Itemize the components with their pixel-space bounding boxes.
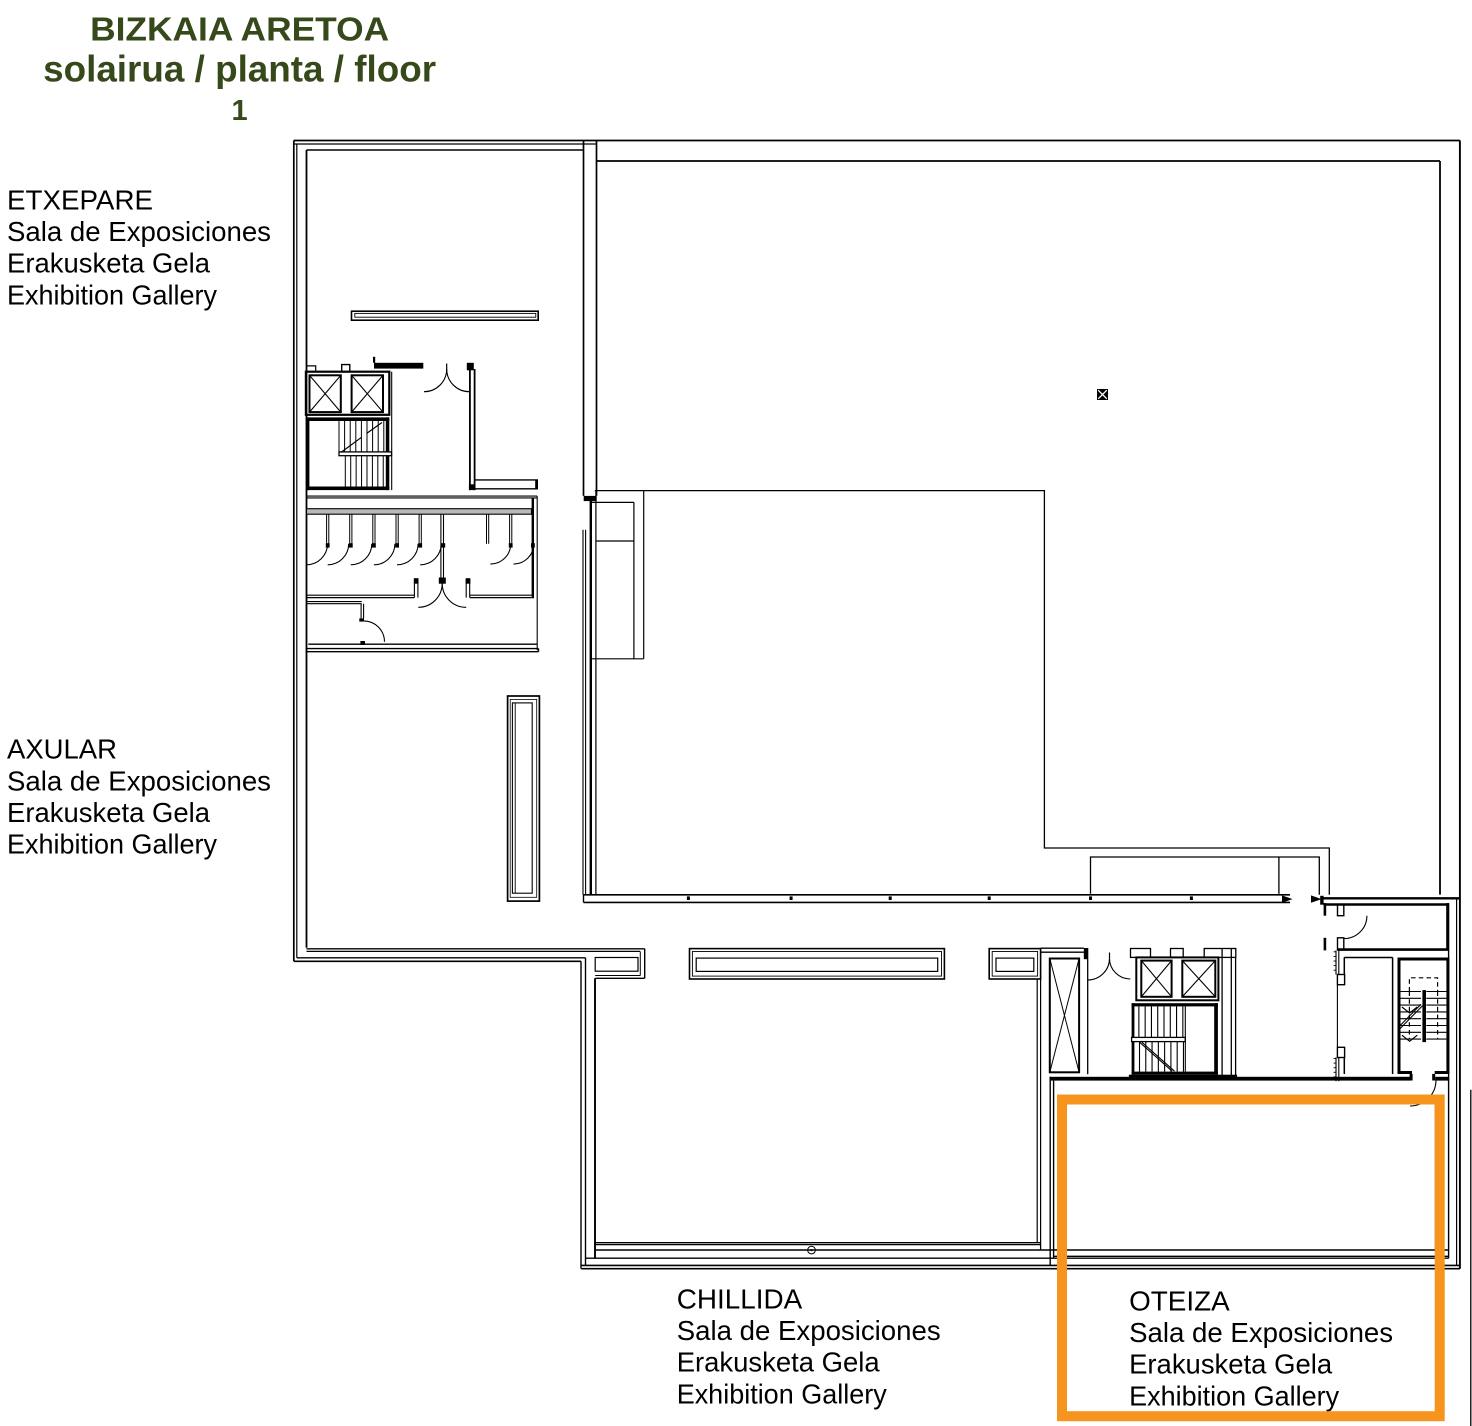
svg-text:Sala de Exposiciones: Sala de Exposiciones [7, 216, 271, 247]
svg-text:Sala de Exposiciones: Sala de Exposiciones [1129, 1317, 1393, 1348]
svg-text:Exhibition Gallery: Exhibition Gallery [7, 829, 217, 860]
svg-text:CHILLIDA: CHILLIDA [677, 1284, 803, 1315]
svg-text:BIZKAIA ARETOA: BIZKAIA ARETOA [90, 10, 389, 47]
svg-text:Exhibition Gallery: Exhibition Gallery [677, 1378, 887, 1409]
svg-text:solairua / planta / floor: solairua / planta / floor [43, 48, 436, 89]
svg-text:AXULAR: AXULAR [7, 734, 117, 765]
svg-text:Erakusketa Gela: Erakusketa Gela [7, 797, 210, 828]
svg-text:Sala de Exposiciones: Sala de Exposiciones [7, 765, 271, 796]
svg-text:Exhibition Gallery: Exhibition Gallery [7, 279, 217, 310]
svg-text:Erakusketa Gela: Erakusketa Gela [1129, 1349, 1332, 1380]
svg-text:OTEIZA: OTEIZA [1129, 1286, 1230, 1317]
svg-text:Sala de Exposiciones: Sala de Exposiciones [677, 1315, 941, 1346]
svg-text:Exhibition Gallery: Exhibition Gallery [1129, 1380, 1339, 1411]
svg-text:Erakusketa Gela: Erakusketa Gela [677, 1347, 880, 1378]
svg-text:Erakusketa Gela: Erakusketa Gela [7, 248, 210, 279]
svg-text:1: 1 [232, 95, 248, 127]
svg-text:ETXEPARE: ETXEPARE [7, 185, 153, 216]
